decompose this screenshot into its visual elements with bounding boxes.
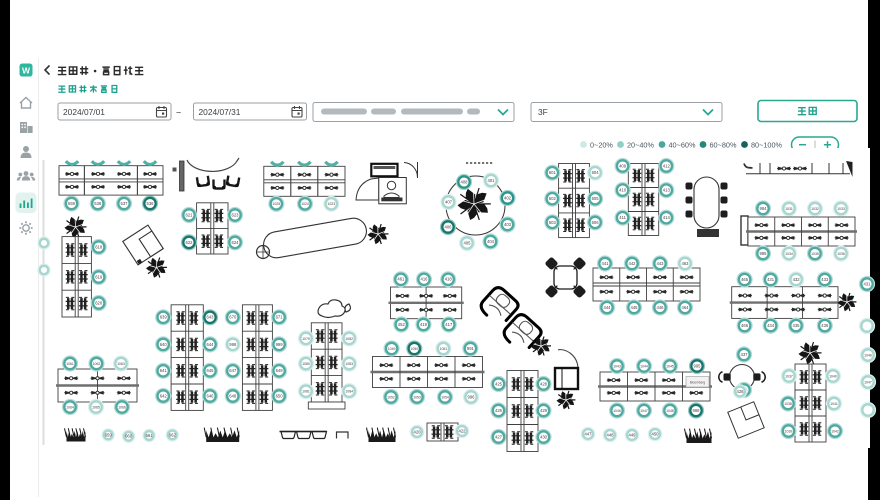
svg-text:1023: 1023 <box>327 202 335 206</box>
svg-text:601: 601 <box>549 170 557 175</box>
svg-text:40~60%: 40~60% <box>669 140 696 149</box>
svg-text:444: 444 <box>604 305 612 310</box>
svg-text:1046: 1046 <box>864 353 872 357</box>
svg-text:419: 419 <box>420 322 428 327</box>
svg-text:1034: 1034 <box>785 252 793 256</box>
svg-text:642: 642 <box>160 393 168 398</box>
svg-text:406: 406 <box>445 224 453 229</box>
svg-text:1025: 1025 <box>272 202 280 206</box>
svg-text:430: 430 <box>540 434 548 439</box>
svg-text:618: 618 <box>95 244 103 249</box>
svg-text:426: 426 <box>737 389 745 394</box>
svg-text:402: 402 <box>504 195 512 200</box>
svg-text:436: 436 <box>821 323 829 328</box>
svg-text:431: 431 <box>864 281 872 286</box>
svg-text:429: 429 <box>540 408 548 413</box>
svg-text:427: 427 <box>495 434 503 439</box>
svg-text:20~40%: 20~40% <box>627 140 654 149</box>
svg-text:435: 435 <box>793 323 801 328</box>
svg-text:620: 620 <box>95 300 103 305</box>
svg-text:1065: 1065 <box>92 405 100 409</box>
svg-text:1081: 1081 <box>302 390 310 394</box>
svg-text:408: 408 <box>461 179 469 184</box>
svg-text:426: 426 <box>495 408 503 413</box>
svg-text:0~20%: 0~20% <box>590 140 613 149</box>
svg-text:603: 603 <box>549 220 557 225</box>
svg-text:434: 434 <box>767 323 775 328</box>
svg-text:465: 465 <box>741 277 749 282</box>
svg-text:2024/07/01: 2024/07/01 <box>63 107 105 117</box>
svg-text:425: 425 <box>495 381 503 386</box>
svg-text:1033: 1033 <box>837 207 845 211</box>
svg-text:671: 671 <box>276 315 284 320</box>
svg-text:446: 446 <box>657 305 665 310</box>
svg-text:991: 991 <box>467 346 475 351</box>
svg-text:648: 648 <box>229 393 237 398</box>
svg-text:437: 437 <box>741 352 749 357</box>
svg-text:1053: 1053 <box>413 395 421 399</box>
svg-text:1035: 1035 <box>811 252 819 256</box>
svg-text:1038: 1038 <box>784 402 792 406</box>
svg-text:431: 431 <box>767 277 775 282</box>
svg-text:646: 646 <box>207 393 215 398</box>
svg-text:640: 640 <box>160 342 168 347</box>
svg-text:412: 412 <box>663 163 671 168</box>
svg-text:622: 622 <box>186 240 194 245</box>
svg-text:1079: 1079 <box>302 337 310 341</box>
svg-text:996: 996 <box>468 394 476 399</box>
svg-text:605: 605 <box>592 196 600 201</box>
svg-text:660: 660 <box>125 434 133 439</box>
svg-text:1042: 1042 <box>831 429 839 433</box>
svg-text:447: 447 <box>585 431 593 436</box>
svg-text:1066: 1066 <box>118 405 126 409</box>
svg-text:428: 428 <box>540 381 548 386</box>
svg-text:1050: 1050 <box>410 347 418 351</box>
svg-text:639: 639 <box>160 315 168 320</box>
svg-text:602: 602 <box>549 196 557 201</box>
svg-text:418: 418 <box>445 277 453 282</box>
svg-text:449: 449 <box>629 432 637 437</box>
svg-text:537: 537 <box>121 201 129 206</box>
svg-text:461: 461 <box>397 277 405 282</box>
svg-text:1024: 1024 <box>301 202 309 206</box>
svg-text:80~100%: 80~100% <box>751 140 783 149</box>
svg-text:417: 417 <box>445 322 453 327</box>
svg-text:536: 536 <box>147 201 155 206</box>
svg-text:1080: 1080 <box>302 362 310 366</box>
svg-text:445: 445 <box>631 305 639 310</box>
svg-text:Bloomberg: Bloomberg <box>690 381 706 385</box>
svg-text:W: W <box>22 66 31 76</box>
svg-text:621: 621 <box>186 212 194 217</box>
svg-text:1041: 1041 <box>830 402 838 406</box>
svg-text:411: 411 <box>619 215 626 220</box>
svg-text:403: 403 <box>504 222 512 227</box>
svg-text:448: 448 <box>607 432 615 437</box>
svg-text:410: 410 <box>619 188 627 193</box>
svg-text:401: 401 <box>488 178 496 183</box>
svg-text:1047: 1047 <box>640 409 648 413</box>
svg-text:662: 662 <box>169 432 177 437</box>
svg-text:443: 443 <box>657 261 665 266</box>
svg-text:647: 647 <box>229 368 237 373</box>
svg-text:442: 442 <box>629 261 637 266</box>
svg-text:1044: 1044 <box>640 364 648 368</box>
svg-text:659: 659 <box>105 432 113 437</box>
svg-text:450: 450 <box>652 431 660 436</box>
svg-text:1061: 1061 <box>66 362 74 366</box>
svg-text:466: 466 <box>741 323 749 328</box>
svg-text:1049: 1049 <box>388 347 396 351</box>
svg-text:650: 650 <box>276 393 284 398</box>
svg-text:3F: 3F <box>538 107 548 117</box>
svg-text:1054: 1054 <box>441 395 449 399</box>
svg-text:409: 409 <box>619 163 627 168</box>
svg-text:644: 644 <box>207 342 215 347</box>
svg-text:606: 606 <box>592 220 600 225</box>
svg-text:1040: 1040 <box>829 374 837 378</box>
svg-text:405: 405 <box>464 240 472 245</box>
svg-text:452: 452 <box>398 322 406 327</box>
svg-text:433: 433 <box>821 277 829 282</box>
svg-text:1064: 1064 <box>66 405 74 409</box>
svg-text:1047: 1047 <box>864 380 872 384</box>
svg-text:464: 464 <box>682 305 690 310</box>
svg-text:604: 604 <box>592 170 600 175</box>
svg-text:414: 414 <box>663 215 671 220</box>
svg-text:559: 559 <box>68 201 76 206</box>
svg-text:420: 420 <box>414 429 422 434</box>
svg-text:1051: 1051 <box>440 347 448 351</box>
svg-text:643: 643 <box>207 315 215 320</box>
svg-text:649: 649 <box>276 368 284 373</box>
svg-text:2024/07/31: 2024/07/31 <box>199 107 241 117</box>
svg-text:1062: 1062 <box>93 362 101 366</box>
svg-text:1031: 1031 <box>785 207 793 211</box>
svg-text:619: 619 <box>95 274 103 279</box>
svg-text:1036: 1036 <box>837 252 845 256</box>
svg-text:641: 641 <box>160 368 168 373</box>
svg-text:1046: 1046 <box>613 409 621 413</box>
svg-text:670: 670 <box>229 315 237 320</box>
svg-text:~: ~ <box>176 108 181 118</box>
svg-text:1037: 1037 <box>785 374 793 378</box>
svg-text:416: 416 <box>421 277 429 282</box>
svg-text:624: 624 <box>232 240 240 245</box>
svg-text:404: 404 <box>487 239 495 244</box>
svg-text:463: 463 <box>682 261 690 266</box>
svg-text:1052: 1052 <box>387 395 395 399</box>
svg-text:645: 645 <box>207 368 215 373</box>
svg-text:1032: 1032 <box>811 207 819 211</box>
svg-text:623: 623 <box>232 212 240 217</box>
svg-text:1082: 1082 <box>345 337 353 341</box>
svg-text:1048: 1048 <box>666 409 674 413</box>
svg-text:413: 413 <box>663 188 671 193</box>
svg-text:441: 441 <box>602 261 610 266</box>
svg-text:422: 422 <box>459 428 467 433</box>
svg-text:432: 432 <box>793 277 801 282</box>
svg-text:999: 999 <box>276 342 284 347</box>
svg-text:60~80%: 60~80% <box>710 140 737 149</box>
svg-text:1039: 1039 <box>785 429 793 433</box>
svg-text:407: 407 <box>445 199 453 204</box>
svg-text:1083: 1083 <box>345 362 353 366</box>
svg-text:995: 995 <box>694 363 702 368</box>
svg-text:1063: 1063 <box>117 362 125 366</box>
svg-text:988: 988 <box>693 408 701 413</box>
svg-text:985: 985 <box>760 251 768 256</box>
svg-text:1084: 1084 <box>345 390 353 394</box>
svg-text:538: 538 <box>94 201 102 206</box>
svg-text:984: 984 <box>760 206 768 211</box>
svg-text:1043: 1043 <box>613 364 621 368</box>
svg-text:1045: 1045 <box>666 364 674 368</box>
svg-text:661: 661 <box>146 433 154 438</box>
svg-text:998: 998 <box>229 342 237 347</box>
